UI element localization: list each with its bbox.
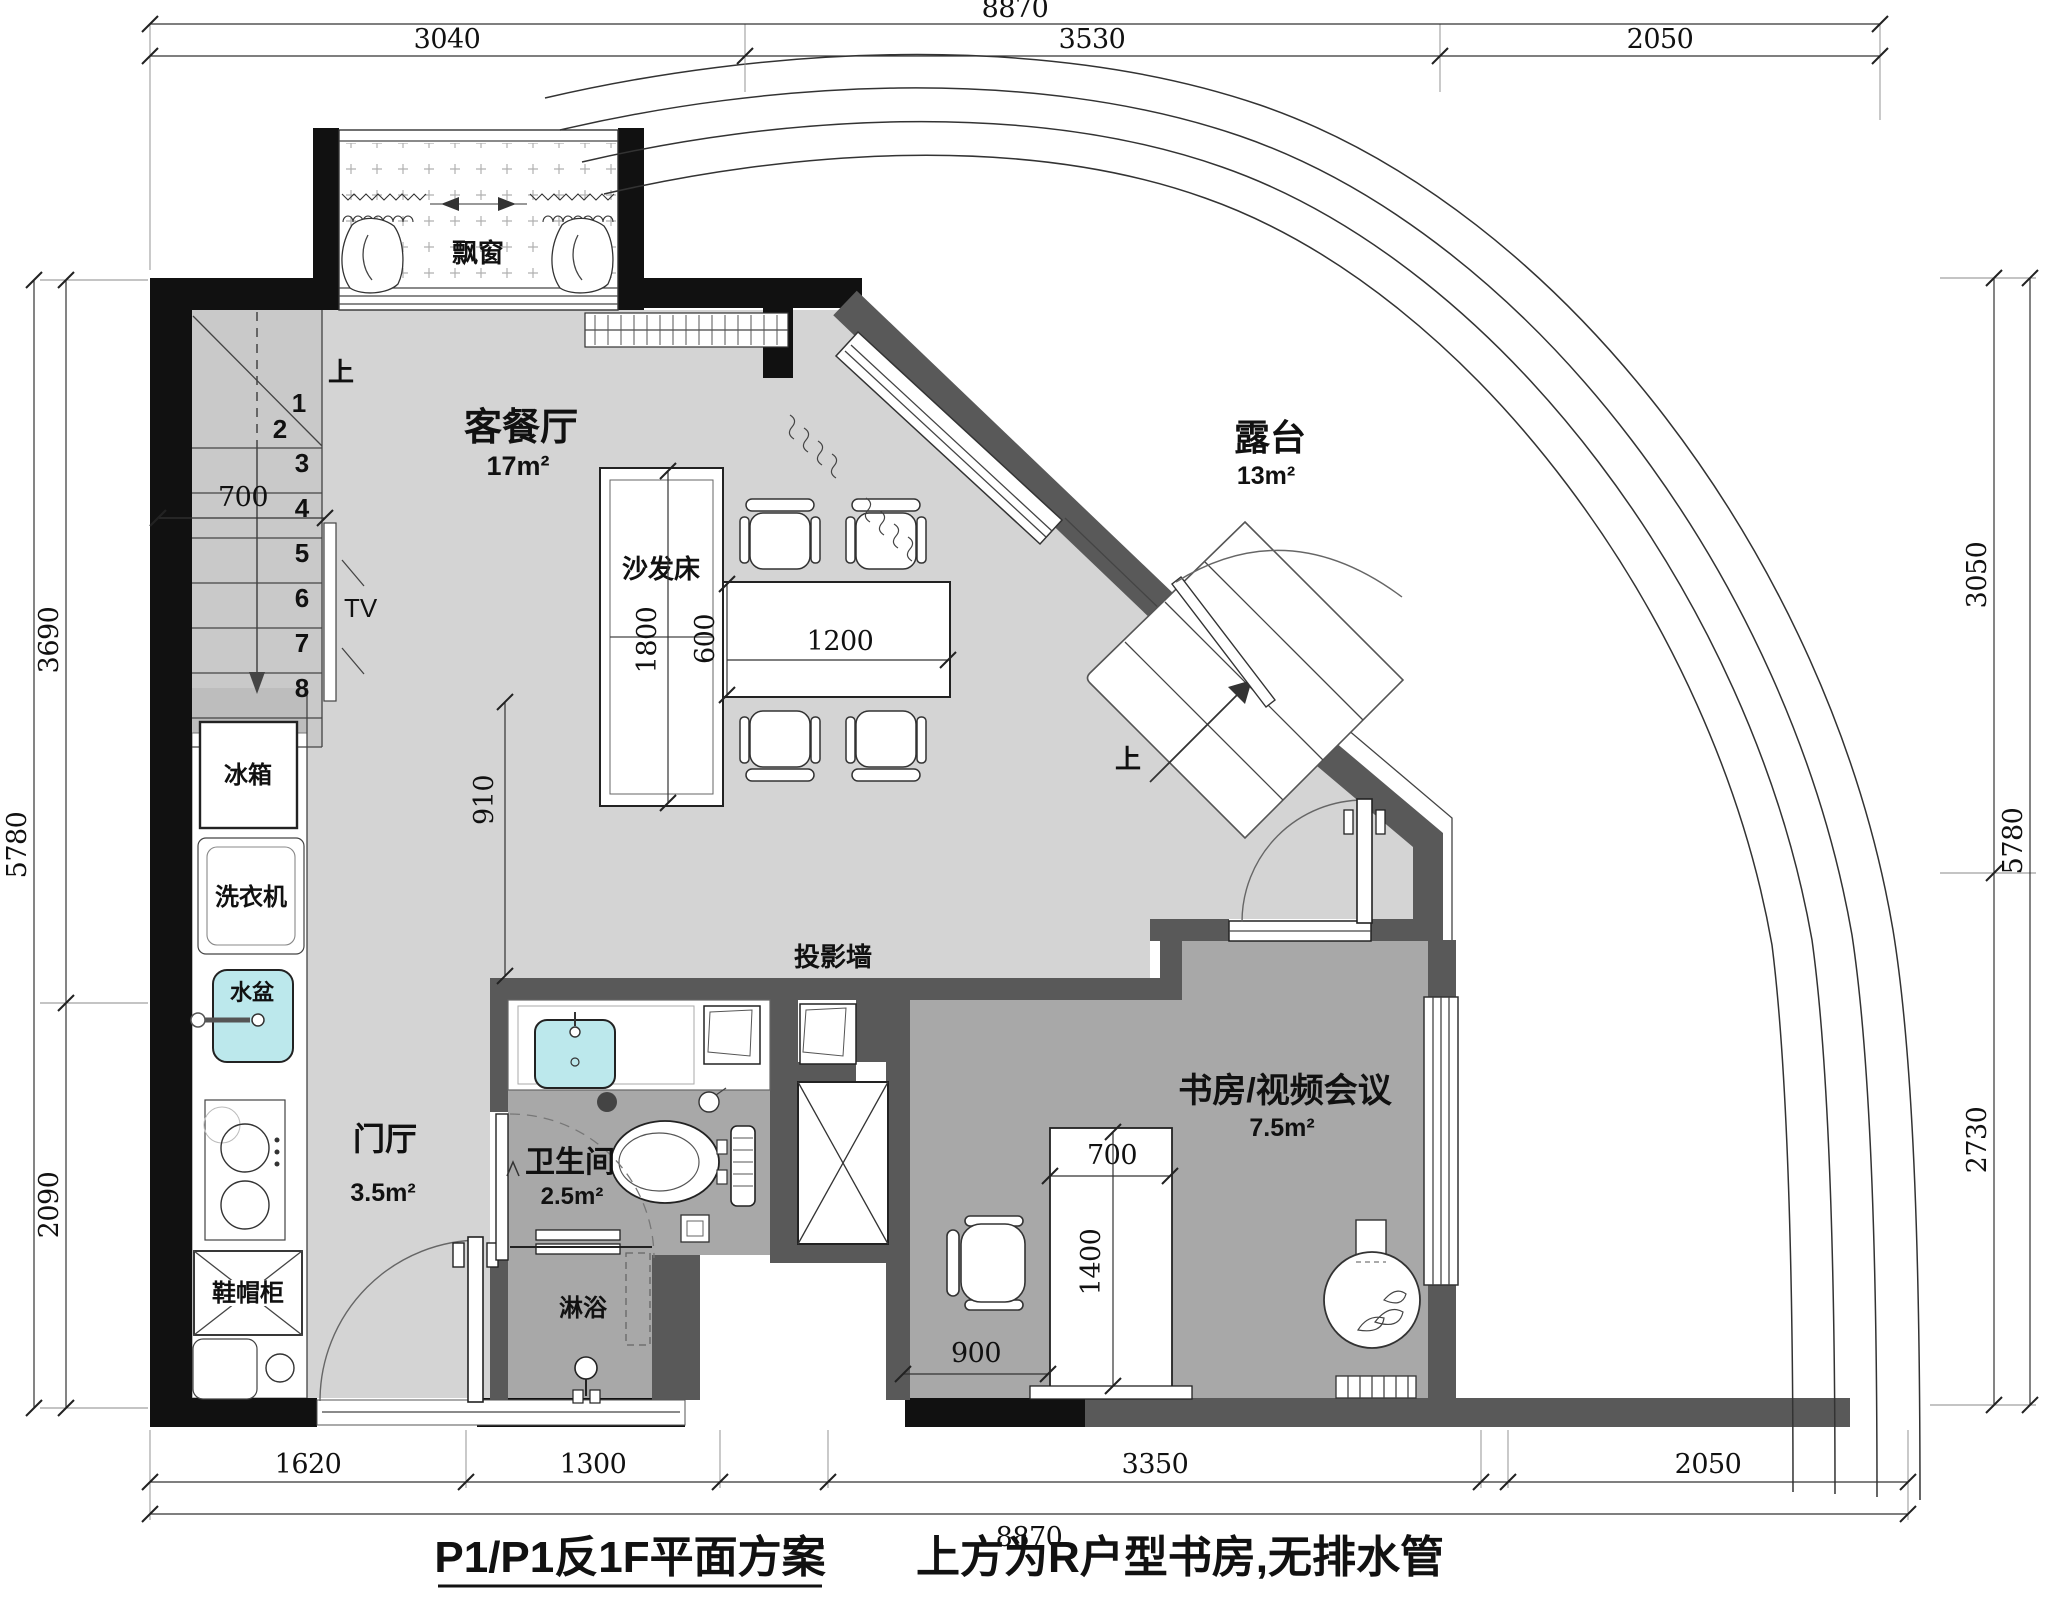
- wall-study-connector: [1160, 941, 1182, 1000]
- dim-bottom-seg-3: 3350: [1122, 1449, 1189, 1480]
- towel-bar-2-icon: [536, 1244, 620, 1254]
- sofa-bed-label: 沙发床: [622, 554, 700, 584]
- hall-area: 3.5m²: [350, 1179, 415, 1207]
- wall-top-mid: [644, 278, 862, 308]
- bay-pier-left: [313, 128, 339, 310]
- stair-up-label: 上: [328, 357, 354, 387]
- wall-study-east-lower: [1428, 1283, 1456, 1400]
- terrace-label: 露台: [1234, 417, 1306, 458]
- chair-icon: [846, 711, 926, 781]
- pillow-right-icon: [552, 218, 613, 293]
- dim-top-seg-1: 3040: [414, 24, 481, 55]
- wall-study-east-upper: [1428, 940, 1456, 1000]
- svg-text:1: 1: [292, 388, 306, 418]
- svg-text:2: 2: [273, 414, 287, 444]
- dim-table-depth: 600: [690, 614, 721, 664]
- dim-top-total: 8870: [982, 0, 1049, 24]
- wall-shaft-right: [886, 978, 910, 1400]
- dim-table-width: 1200: [807, 626, 874, 657]
- plan-note: 上方为R户型书房,无排水管: [916, 1533, 1444, 1582]
- wall-bath-west-bottom: [490, 1258, 508, 1400]
- dim-top-seg-2: 3530: [1059, 24, 1126, 55]
- study-door-handle-2: [1376, 810, 1385, 834]
- basin-label: 水盆: [230, 980, 275, 1005]
- study-door-handle-1: [1344, 810, 1353, 834]
- tv-label: TV: [344, 593, 378, 623]
- dim-bottom-seg-2: 1300: [560, 1449, 627, 1480]
- living-room-area: 17m²: [486, 451, 549, 481]
- dim-desk-length: 1400: [1076, 1229, 1107, 1296]
- floor-plan-page: 飘窗 1 2 3 4 5 6 7 8 上: [0, 0, 2048, 1597]
- dim-right-seg-2: 2730: [1962, 1107, 1993, 1174]
- dim-passage: 910: [469, 775, 500, 825]
- wall-top-left: [150, 278, 315, 310]
- chair-icon: [740, 711, 820, 781]
- dim-stair-width: 700: [218, 482, 268, 513]
- faucet-base-icon: [191, 1013, 205, 1027]
- pillow-left-icon: [342, 218, 403, 293]
- wall-bottom-1: [150, 1398, 317, 1427]
- hall-label: 门厅: [353, 1121, 417, 1157]
- dim-bottom-seg-1: 1620: [275, 1449, 342, 1480]
- wall-shaft-bottom: [798, 1245, 886, 1263]
- shower-label: 淋浴: [559, 1295, 608, 1322]
- outside-notch: [700, 1263, 886, 1423]
- svg-text:6: 6: [295, 583, 309, 613]
- dim-left-total: 5780: [2, 812, 33, 879]
- shower-valve-left: [573, 1390, 583, 1403]
- floor-drain-icon: [597, 1092, 617, 1112]
- wall-shaft-left: [770, 978, 798, 1263]
- bath-label: 卫生间: [525, 1146, 615, 1179]
- terrace-area: 13m²: [1237, 462, 1295, 490]
- shoe-cabinet-label: 鞋帽柜: [212, 1280, 284, 1307]
- study-label: 书房/视频会议: [1178, 1072, 1392, 1110]
- bath-door-leaf: [496, 1114, 508, 1260]
- shower-head-icon: [575, 1357, 597, 1379]
- wall-left: [150, 278, 192, 1427]
- chair-icon: [740, 499, 820, 569]
- bay-window-label: 飘窗: [452, 238, 504, 268]
- living-room-label: 客餐厅: [464, 406, 578, 449]
- entry-handle-left-icon: [453, 1243, 464, 1267]
- dim-left-seg-1: 3690: [34, 607, 65, 674]
- cabinet-base-icon: [193, 1339, 257, 1399]
- wall-bottom-3: [905, 1398, 1085, 1427]
- dim-right-total: 5780: [1998, 808, 2029, 875]
- study-floor-door-bay: [1182, 941, 1428, 1000]
- fridge-label: 冰箱: [224, 761, 272, 789]
- terrace-up-label: 上: [1115, 744, 1141, 774]
- svg-text:8: 8: [295, 673, 309, 703]
- towel-bar-1-icon: [536, 1230, 620, 1240]
- dim-desk-offset: 900: [951, 1338, 1001, 1369]
- dim-top-seg-3: 2050: [1627, 24, 1694, 55]
- wall-study-top-right: [1371, 919, 1428, 941]
- dim-bottom-seg-4: 2050: [1675, 1449, 1742, 1480]
- svg-text:3: 3: [295, 448, 309, 478]
- paper-holder-icon: [681, 1215, 709, 1242]
- dim-sofa-length: 1800: [632, 607, 663, 674]
- keyboard-strip-icon: [1336, 1376, 1416, 1398]
- svg-text:7: 7: [295, 628, 309, 658]
- bay-pier-right: [618, 128, 644, 310]
- wall-study-top-left: [1150, 919, 1229, 941]
- study-area: 7.5m²: [1249, 1114, 1314, 1142]
- wall-shower-east: [652, 1255, 700, 1400]
- wall-bath-west-top: [490, 1000, 508, 1112]
- plan-title: P1/P1反1F平面方案: [434, 1533, 826, 1582]
- wall-projection: [490, 978, 1182, 1000]
- drain-icon: [252, 1014, 264, 1026]
- svg-text:5: 5: [295, 538, 309, 568]
- dim-right-seg-1: 3050: [1962, 542, 1993, 609]
- chair-icon: [846, 499, 926, 569]
- bath-area: 2.5m²: [541, 1183, 604, 1210]
- shower-valve-right: [590, 1390, 600, 1403]
- toilet-hinge-top: [717, 1140, 727, 1154]
- radiator-icon: [585, 313, 788, 347]
- dim-desk-width: 700: [1087, 1140, 1137, 1171]
- titles: P1/P1反1F平面方案 上方为R户型书房,无排水管: [434, 1533, 1444, 1586]
- wall-shaft-filler: [856, 1000, 886, 1062]
- washer-label: 洗衣机: [215, 883, 287, 911]
- bath-faucet-icon: [570, 1027, 580, 1037]
- bay-window: 飘窗: [339, 130, 618, 310]
- projection-wall-label: 投影墙: [794, 942, 872, 972]
- floor-plan-drawing: 飘窗 1 2 3 4 5 6 7 8 上: [0, 0, 2048, 1597]
- toilet-hinge-bottom: [717, 1170, 727, 1184]
- entry-door-leaf: [468, 1237, 483, 1402]
- tv-icon: [324, 523, 336, 701]
- study-door-leaf: [1357, 799, 1372, 923]
- wall-terrace-bottom: [1085, 1398, 1850, 1427]
- cooktop-icon: [205, 1100, 285, 1240]
- dim-left-seg-2: 2090: [34, 1172, 65, 1239]
